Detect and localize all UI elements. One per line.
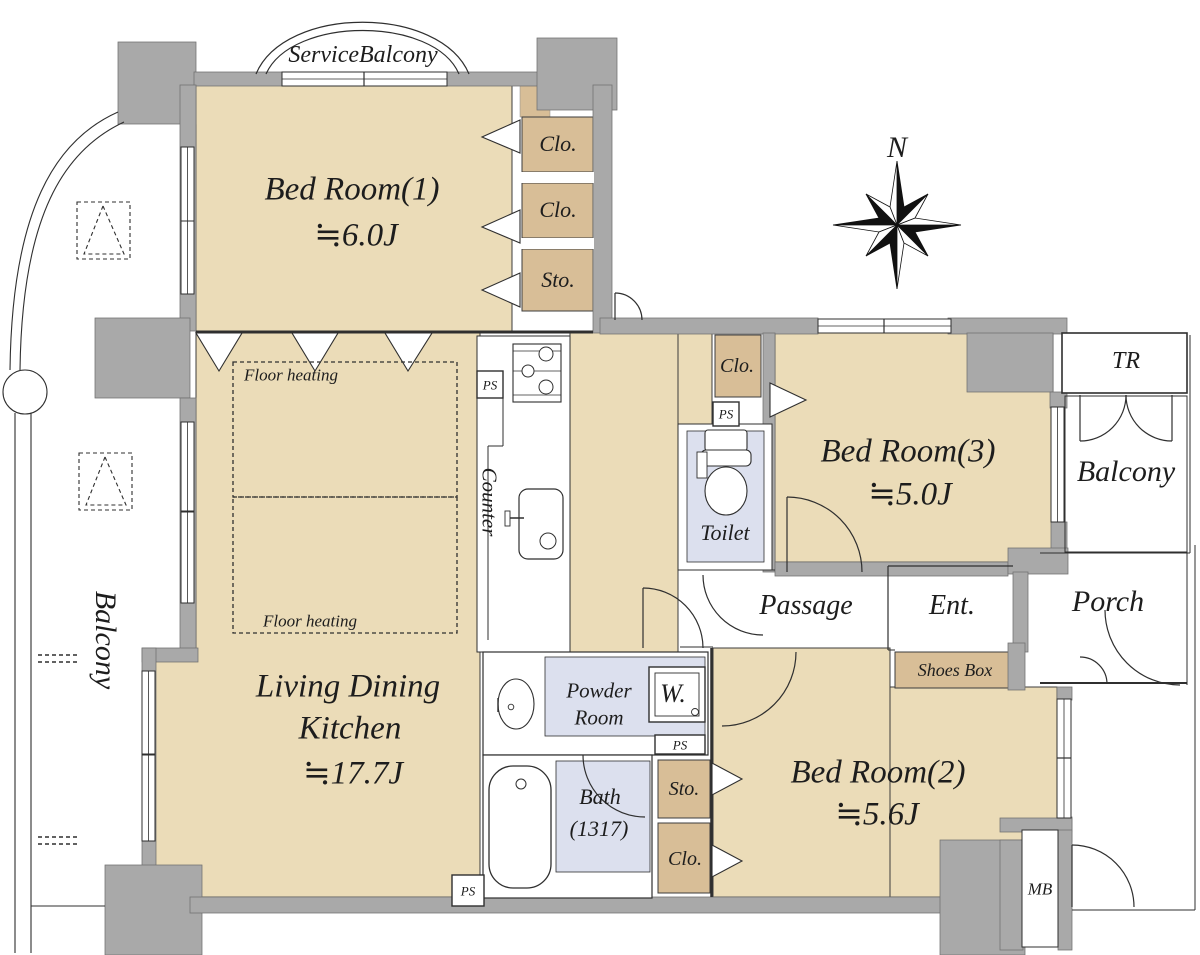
ps-kitchen-label: PS <box>483 379 497 392</box>
porch-label: Porch <box>1072 587 1144 617</box>
wash-basin <box>498 679 534 729</box>
emergency-hatch-2 <box>79 453 132 510</box>
toilet-room <box>678 424 772 570</box>
ldk-floor-ext <box>156 660 197 897</box>
ps-powder-label: PS <box>673 739 687 752</box>
bedroom2-label: Bed Room(2) <box>790 757 965 790</box>
bedroom2-floor-right <box>890 687 1057 897</box>
ldk-size: ≒17.7J <box>303 758 403 791</box>
left-balcony-outline <box>3 112 124 953</box>
storage2-label: Sto. <box>669 779 700 799</box>
ldk-label-line1: Living Dining <box>256 671 440 704</box>
floorplan-drawing <box>0 0 1200 955</box>
compass-rose <box>833 161 961 289</box>
bedroom2-size: ≒5.6J <box>835 799 919 832</box>
passage-label: Passage <box>759 592 852 620</box>
washer-drain <box>692 709 699 716</box>
meter-box-label: MB <box>1028 881 1053 898</box>
bathtub <box>489 766 551 888</box>
emergency-hatch-1 <box>77 202 130 259</box>
closet1-label: Clo. <box>539 133 576 155</box>
bath-size: (1317) <box>570 818 629 840</box>
toilet-fixture <box>697 430 751 515</box>
closet-br2-label: Clo. <box>668 849 702 869</box>
compass-north-label: N <box>887 133 907 163</box>
ps-bottom-label: PS <box>461 885 475 898</box>
entrance-label: Ent. <box>929 592 975 620</box>
powder-room-label-line1: Powder <box>566 681 631 702</box>
floor-heating-label-1: Floor heating <box>244 367 338 384</box>
washer-label: W. <box>660 681 686 707</box>
corridor-floor <box>678 331 712 426</box>
ps-toilet-label: PS <box>719 408 733 421</box>
toilet-label: Toilet <box>700 522 749 544</box>
stove <box>513 344 561 402</box>
bedroom3-size: ≒5.0J <box>868 479 952 512</box>
service-balcony-label: ServiceBalcony <box>288 43 437 67</box>
bedroom1-size: ≒6.0J <box>314 220 398 253</box>
bedroom1-floor <box>196 85 512 331</box>
balcony-left-label: Balcony <box>90 591 120 689</box>
closet2-label: Clo. <box>539 199 576 221</box>
floor-heating-label-2: Floor heating <box>263 613 357 630</box>
ldk-label-line2: Kitchen <box>299 713 402 746</box>
storage1-label: Sto. <box>541 269 575 291</box>
bedroom3-label: Bed Room(3) <box>820 436 995 469</box>
powder-room-label-line2: Room <box>575 708 624 729</box>
trunk-room-label: TR <box>1112 349 1140 373</box>
balcony-right-label: Balcony <box>1077 457 1175 487</box>
closet-hall-label: Clo. <box>720 356 754 376</box>
floor-plan: ServiceBalcony Bed Room(1) ≒6.0J Clo. Cl… <box>0 0 1200 955</box>
dashed-marks <box>38 202 457 844</box>
bedroom1-label: Bed Room(1) <box>264 174 439 207</box>
shoes-box-label: Shoes Box <box>918 661 992 679</box>
counter-label: Counter <box>479 468 500 537</box>
bath-label: Bath <box>579 786 621 808</box>
balcony-partitions <box>38 655 78 844</box>
ldk-strip-floor <box>570 331 678 652</box>
kitchen-sink <box>505 489 563 559</box>
